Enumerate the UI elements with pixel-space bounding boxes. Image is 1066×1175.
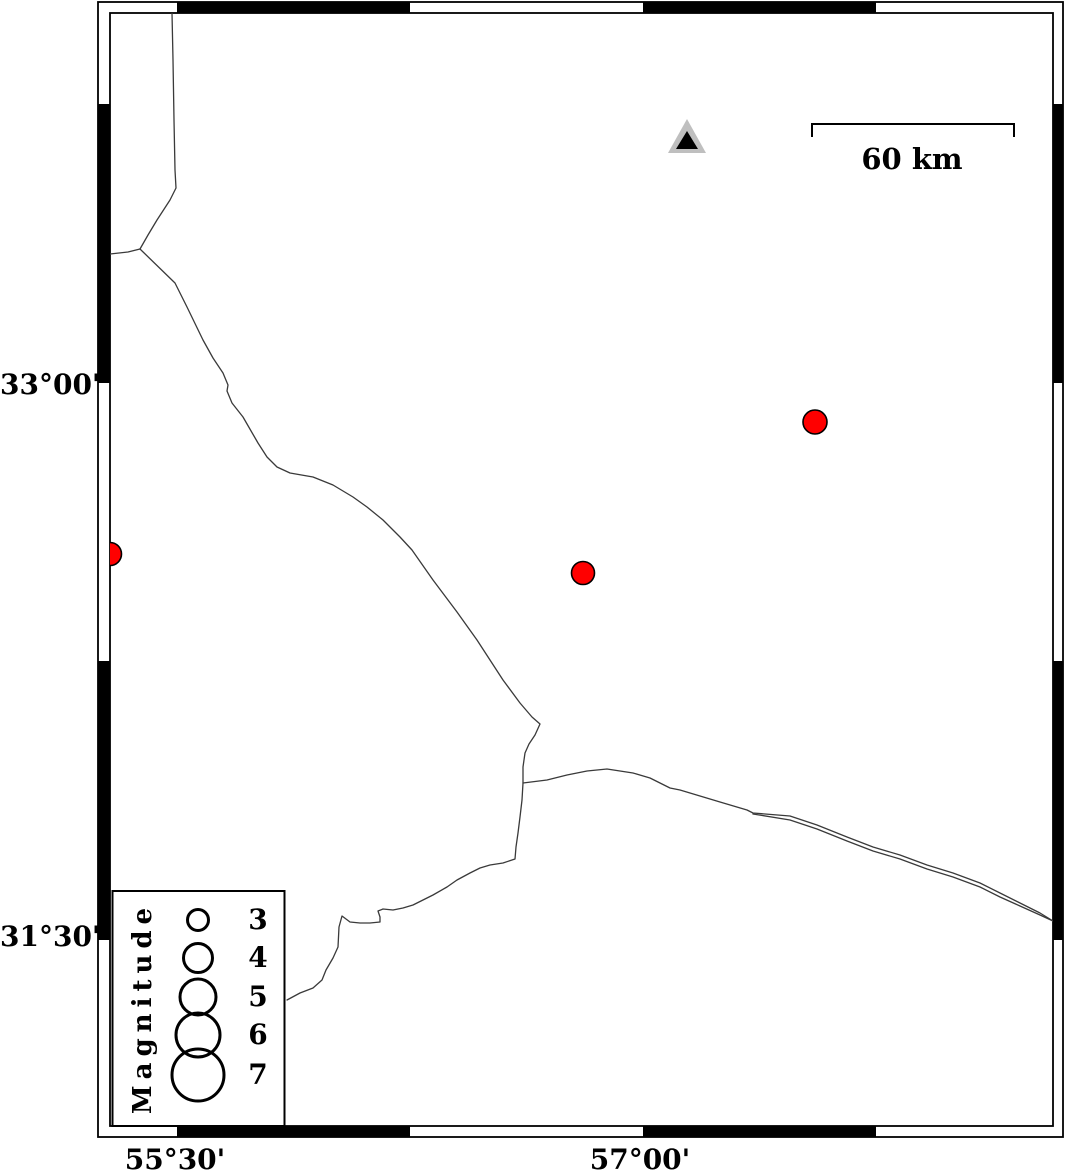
lon-label-55-30: 55°30' [105,1142,245,1175]
map-figure: 33°00' 31°30' 55°30' 57°00' 60 km Magnit… [0,0,1066,1175]
earthquake-epicenter-marker [99,543,122,566]
boundary-line-north [140,13,176,249]
boundary-line-west-stub [110,249,140,254]
earthquake-epicenter-marker [572,562,595,585]
frame-segment-left [98,661,110,940]
scale-bar-bracket [812,124,1014,137]
lat-label-31-30: 31°30' [0,919,88,955]
frame-segment-bottom [177,1126,410,1137]
earthquake-markers [99,410,828,585]
legend-title: Magnitude [124,888,162,1128]
legend-entry-label-5: 5 [238,979,278,1015]
lat-label-33-00: 33°00' [0,367,88,403]
scale-bar-label: 60 km [832,142,992,176]
boundary-line-main [140,249,540,1000]
legend-entry-label-6: 6 [238,1017,278,1053]
legend-entry-label-7: 7 [238,1057,278,1093]
earthquake-epicenter-marker [803,410,827,434]
frame-segment-right [1053,661,1063,940]
lon-label-57-00: 57°00' [570,1142,710,1175]
frame-segment-top [643,2,876,13]
boundary-line-east-lower [753,814,1053,921]
boundary-line-east-upper [523,769,1053,921]
legend-entry-label-4: 4 [238,940,278,976]
frame-segment-top [177,2,410,13]
frame-segment-right [1053,104,1063,383]
legend-entry-label-3: 3 [238,902,278,938]
frame-segment-left [98,104,110,383]
station-marker [668,119,706,153]
frame-segment-bottom [643,1126,876,1137]
